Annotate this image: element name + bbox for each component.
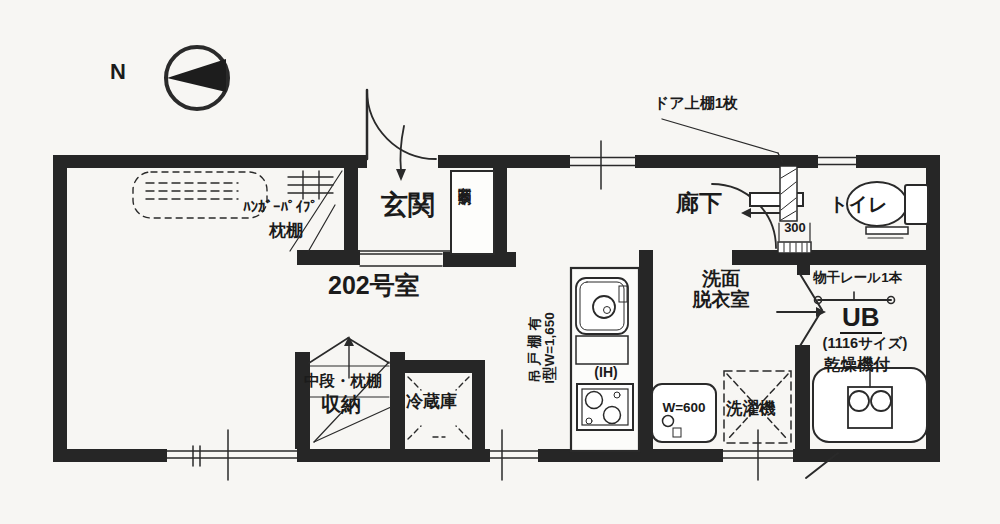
washroom-line1: 洗面 xyxy=(671,269,771,290)
pillow-shelf-note: 枕棚 xyxy=(269,222,303,241)
entrance-label: 玄関 xyxy=(381,191,435,221)
drying-rail-note: 物干レール1本 xyxy=(813,271,902,286)
washing-machine-label: 洗濯機 xyxy=(726,399,776,417)
entrance-storage-label: 玄関収納 xyxy=(457,176,471,184)
door-top-shelf-note: ドア上棚1枚 xyxy=(654,95,738,112)
kitchen-note: 吊戸棚有 I型W=1,650 xyxy=(528,263,568,433)
door-dim-label: 300 xyxy=(779,221,811,235)
floor-plan-202: N 202号室 玄関 玄関収納 廊下 トイレ ドア上棚1枚 300 ﾊﾝｶﾞｰﾊ… xyxy=(0,0,1000,524)
room-number-label: 202号室 xyxy=(328,272,420,300)
hanger-pipe-note: ﾊﾝｶﾞｰﾊﾟｲﾌﾟ xyxy=(243,199,318,216)
corridor-door xyxy=(712,166,811,253)
kitchen-spec-note: I型W=1,650 xyxy=(543,263,558,433)
plan-linework xyxy=(0,0,1000,524)
bathtub-fixture xyxy=(813,368,927,442)
corridor-label: 廊下 xyxy=(676,191,722,216)
refrigerator-label: 冷蔵庫 xyxy=(406,393,457,412)
washroom-line2: 脱衣室 xyxy=(671,290,771,311)
kitchen-cupboard-note: 吊戸棚有 xyxy=(528,263,543,433)
ih-label: (IH) xyxy=(578,365,634,380)
bath-size-label: (1116サイズ) xyxy=(815,336,915,352)
drain-mark xyxy=(806,453,838,478)
leader-line xyxy=(662,119,785,167)
washroom-label: 洗面 脱衣室 xyxy=(671,269,771,311)
bath-dryer-label: 乾燥機付 xyxy=(824,355,890,373)
storage-shelf-label: 中段・枕棚 xyxy=(304,372,382,389)
compass-icon xyxy=(166,47,228,109)
bath-unit-label: UB xyxy=(840,303,882,334)
ih-cooktop xyxy=(577,384,633,430)
toilet-label: トイレ xyxy=(829,195,887,216)
kitchen-counter xyxy=(571,268,639,451)
basin-width-label: W=600 xyxy=(652,401,716,416)
room-opening-threshold xyxy=(360,254,442,266)
entrance-door-arc xyxy=(367,90,436,181)
north-label: N xyxy=(110,60,126,84)
storage-label: 収納 xyxy=(321,393,361,415)
